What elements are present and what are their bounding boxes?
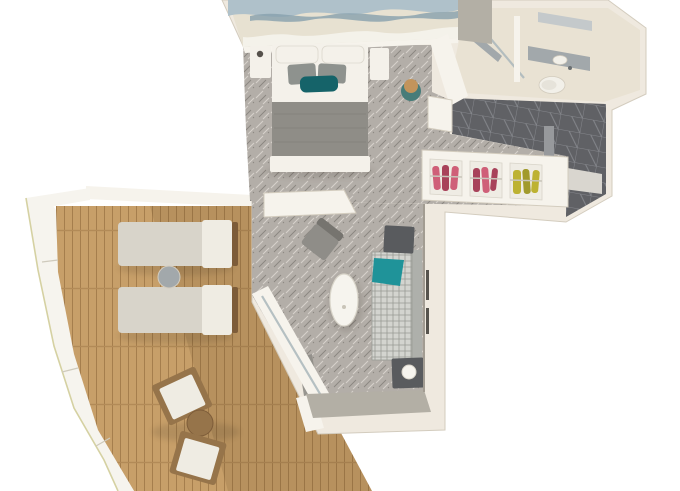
garment [513, 170, 521, 194]
bathroom-divider-wall [514, 16, 520, 82]
teal-throw [372, 258, 404, 286]
white-pillow-left [276, 46, 318, 63]
ball-lamp [402, 365, 416, 379]
table-detail [342, 305, 346, 309]
pink-clothes-section [432, 165, 459, 191]
sink-basin [553, 56, 567, 65]
garment [473, 168, 480, 192]
garment [442, 165, 449, 191]
bistro-table [187, 410, 213, 436]
suite-floorplan-svg [0, 0, 680, 491]
lounger-frame [232, 287, 238, 333]
lounger-headrest [202, 285, 232, 335]
nightstand-right [370, 48, 389, 80]
oval-coffee-table [330, 274, 358, 326]
nightstand-left [250, 46, 271, 78]
gray-runner-blanket [272, 102, 368, 158]
sideboard [264, 190, 356, 217]
nightstand-lamp [257, 51, 263, 57]
doormat [544, 126, 554, 160]
wall-vent-slit [426, 270, 429, 300]
sun-lounger-bottom [118, 285, 238, 335]
lounger-frame [232, 222, 238, 266]
foot-bench [270, 156, 370, 172]
bedroom-desk [428, 96, 452, 132]
faucet [568, 66, 572, 70]
hanging-rail-2 [470, 178, 502, 179]
lounger-headrest [202, 220, 232, 268]
hanging-rail [430, 176, 462, 177]
wardrobe-side-panel [546, 165, 566, 204]
hanging-rail-3 [510, 180, 542, 181]
pink-clothes-section-2 [473, 167, 498, 193]
gray-wall-strip [458, 0, 492, 44]
toilet-seat [542, 80, 557, 90]
open-wardrobe [422, 150, 568, 207]
end-table-top [383, 225, 414, 254]
teal-accent-pillow [300, 75, 339, 92]
floorplan-render [0, 0, 680, 491]
wall-vent-slit-2 [426, 308, 429, 334]
king-bed [265, 44, 375, 178]
white-pillow-right [322, 46, 364, 63]
sun-lounger-top [118, 220, 238, 268]
vanity-stool-top [404, 79, 418, 93]
